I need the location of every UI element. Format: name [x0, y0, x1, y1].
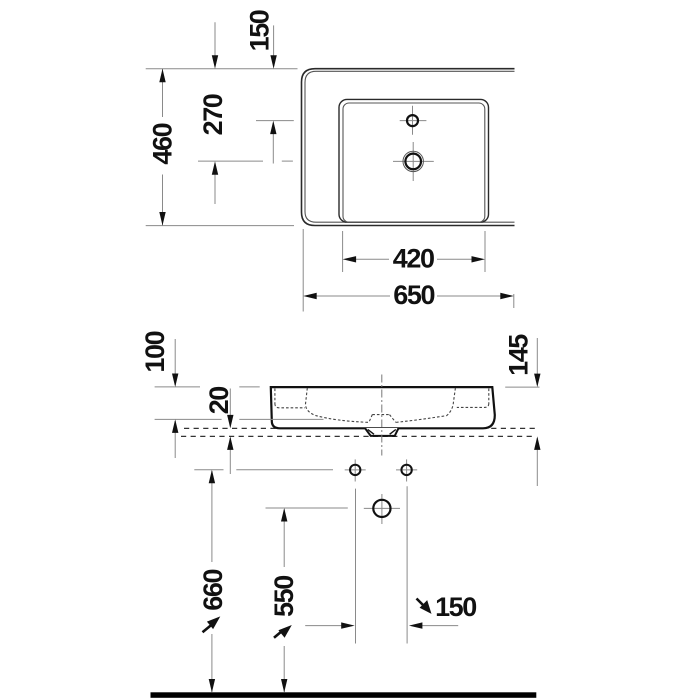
svg-text:660: 660 [198, 569, 228, 610]
svg-text:150: 150 [435, 592, 476, 622]
svg-text:150: 150 [244, 10, 274, 51]
svg-text:20: 20 [204, 387, 234, 415]
svg-text:420: 420 [393, 244, 434, 274]
svg-text:550: 550 [269, 576, 299, 617]
svg-text:460: 460 [147, 123, 177, 164]
svg-text:270: 270 [198, 94, 228, 135]
svg-text:145: 145 [504, 334, 534, 376]
svg-text:100: 100 [140, 331, 170, 372]
svg-text:650: 650 [393, 280, 434, 310]
